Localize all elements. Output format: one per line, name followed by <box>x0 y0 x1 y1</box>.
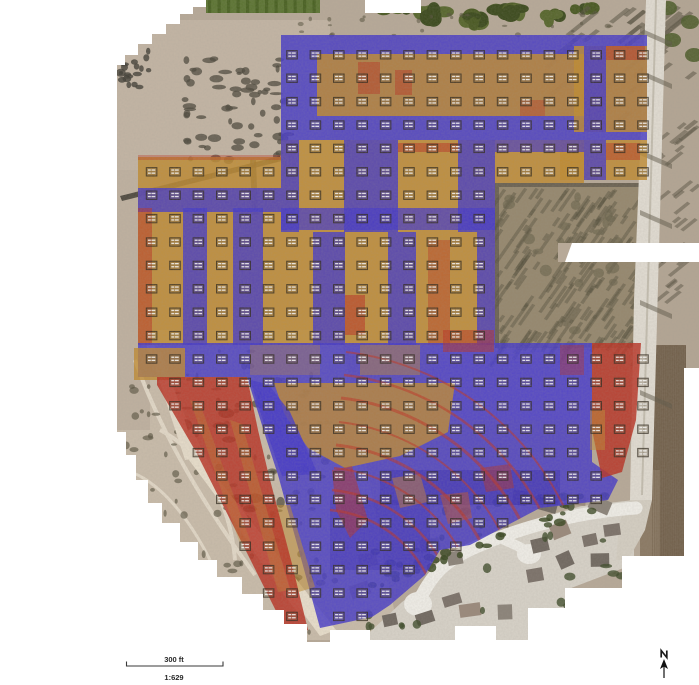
svg-text:300 ft: 300 ft <box>164 655 184 664</box>
svg-text:1:629: 1:629 <box>164 673 183 682</box>
